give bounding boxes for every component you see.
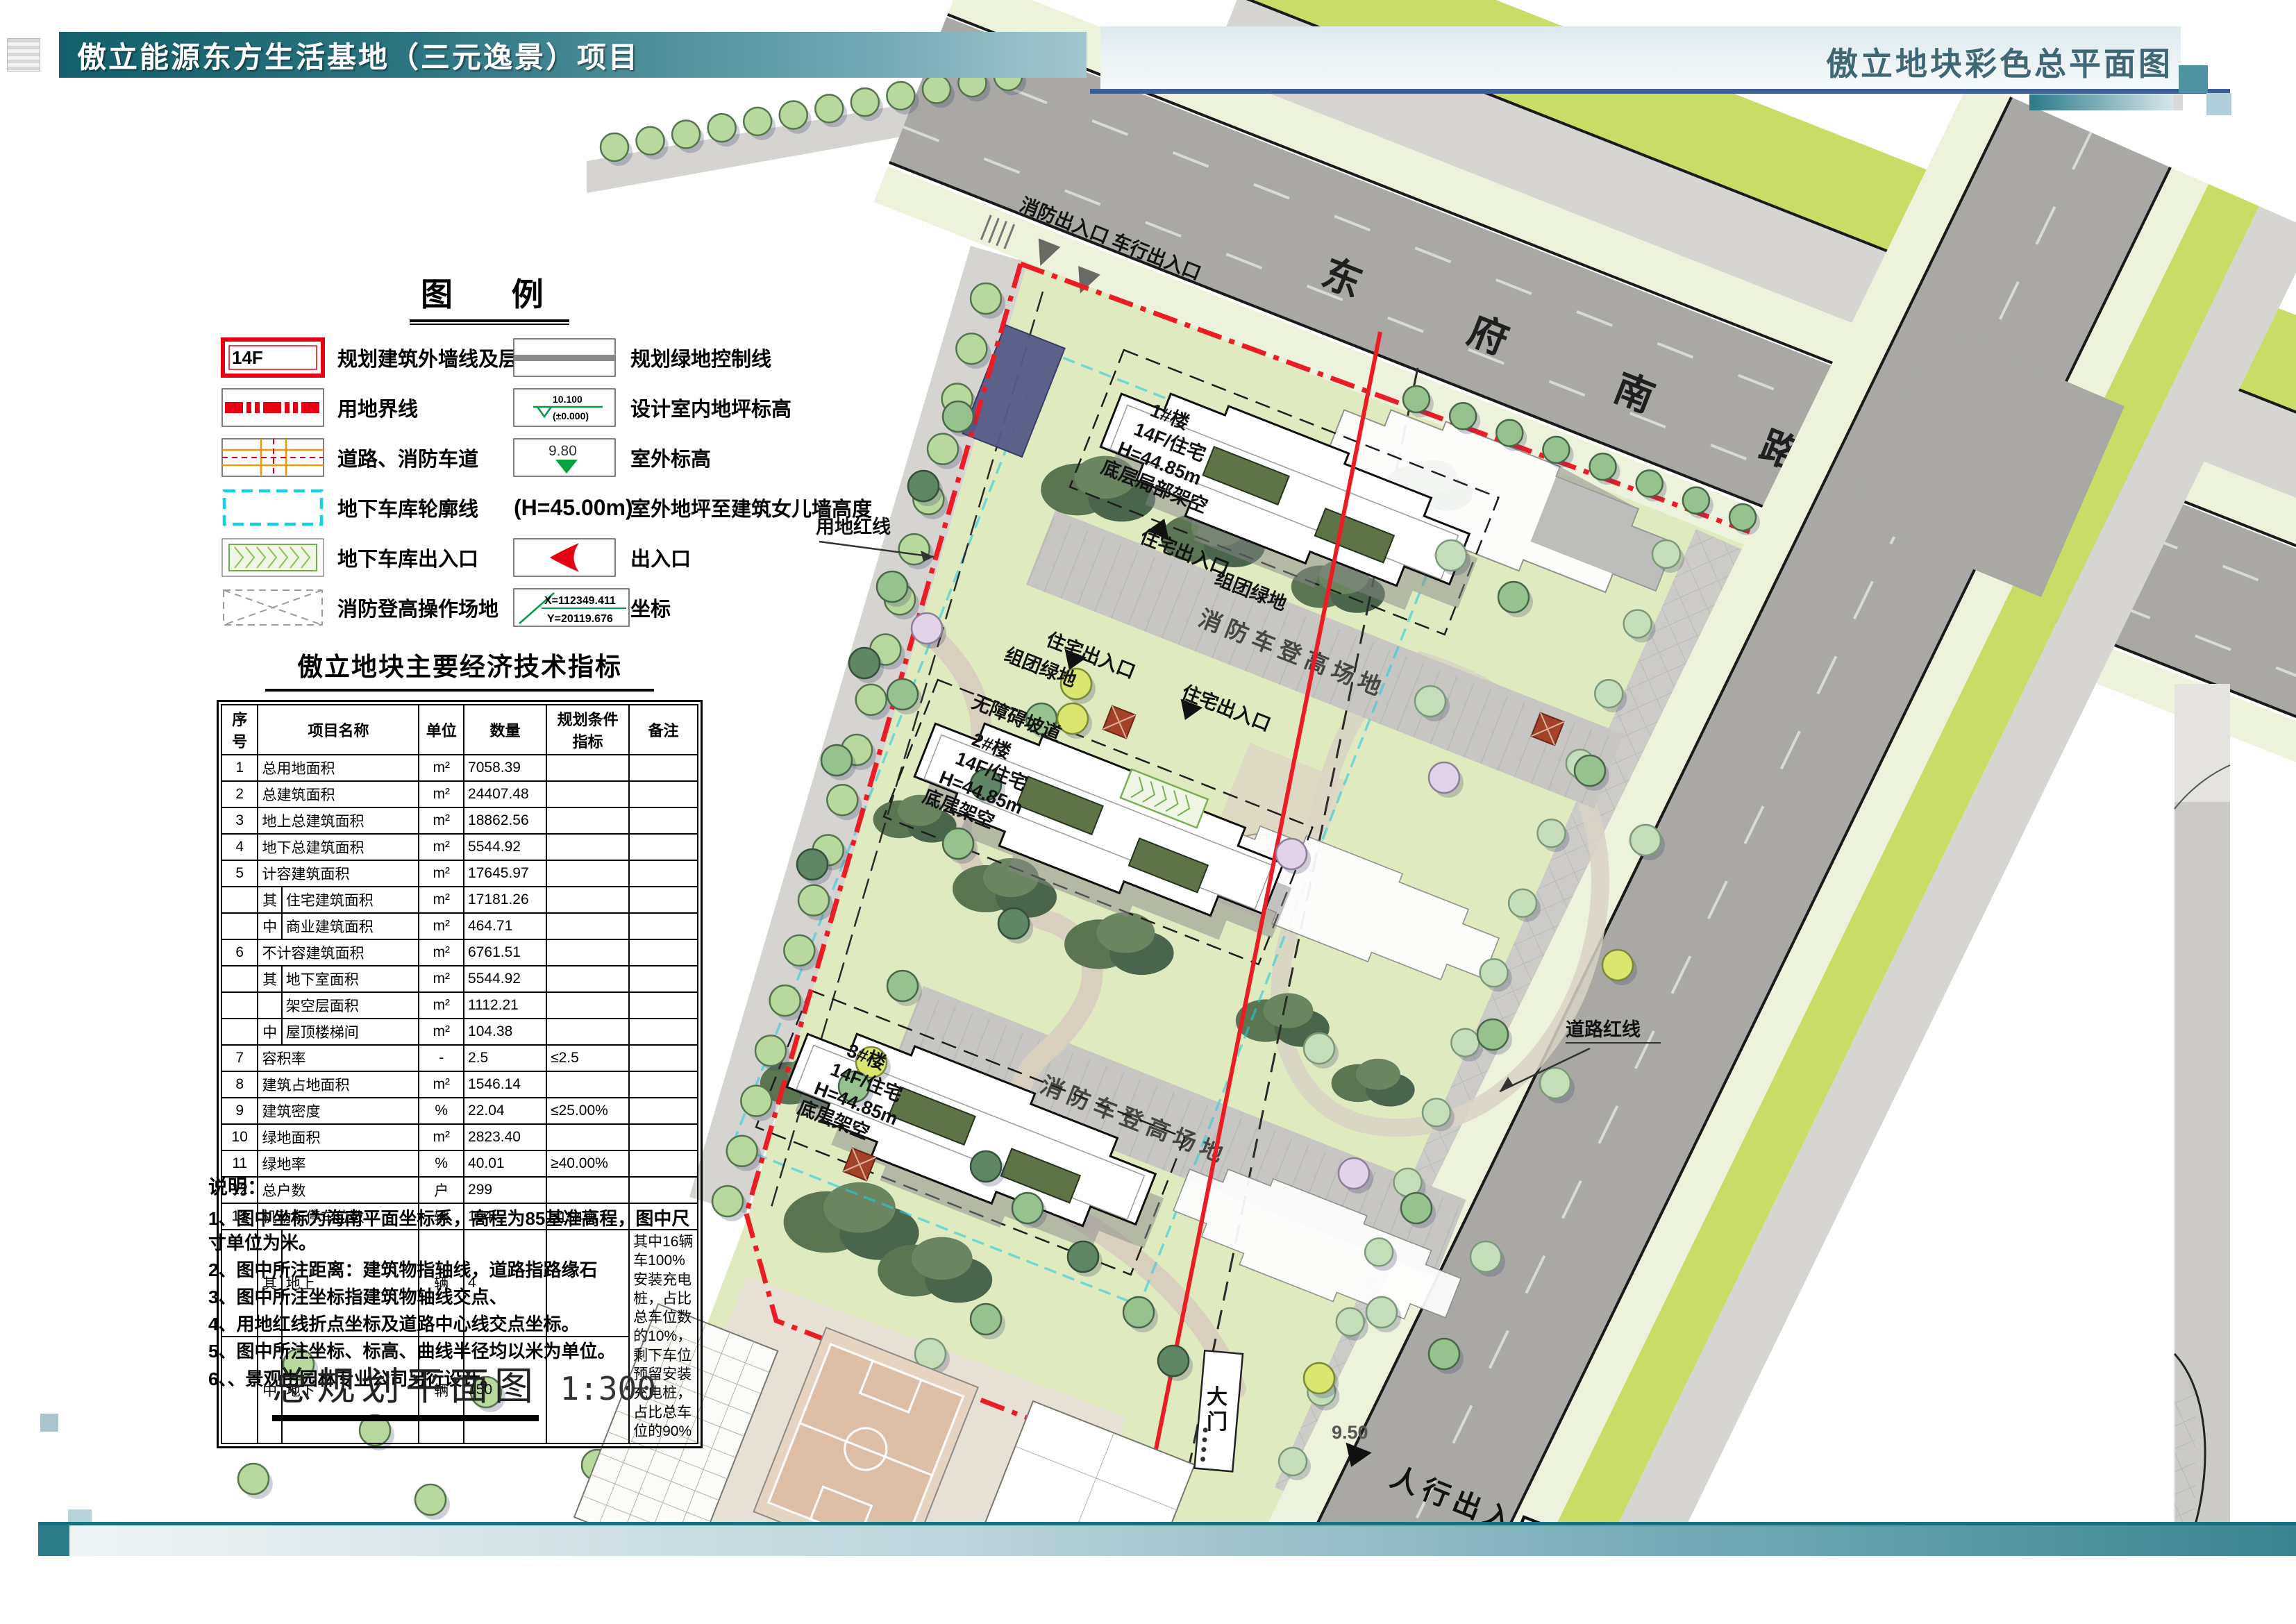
header-deco-square-icon bbox=[2179, 65, 2208, 93]
table-cell: m² bbox=[419, 887, 464, 913]
legend-site-boundary-icon bbox=[221, 387, 337, 428]
note-item: 4、用地红线折点坐标及道路中心线交点坐标。 bbox=[208, 1312, 694, 1337]
header-bar: 傲立能源东方生活基地（三元逸景）项目 bbox=[59, 32, 1087, 78]
table-cell: 5544.92 bbox=[464, 966, 546, 992]
plan-title: 总规划平面图 1:300 bbox=[272, 1355, 656, 1412]
table-cell: 住宅建筑面积 bbox=[282, 887, 419, 913]
table-title: 傲立地块主要经济技术指标 bbox=[217, 646, 703, 683]
legend-level-top: 10.100 bbox=[553, 394, 583, 405]
table-cell: 1 bbox=[221, 755, 258, 781]
table-cell: 7058.39 bbox=[464, 755, 546, 781]
project-title: 傲立能源东方生活基地（三元逸景）项目 bbox=[59, 34, 639, 76]
table-cell: 商业建筑面积 bbox=[282, 913, 419, 939]
table-cell bbox=[629, 939, 698, 966]
table-row: 10绿地面积m²2823.40 bbox=[221, 1124, 698, 1150]
legend-h45-text: (H=45.00m) bbox=[514, 495, 633, 520]
legend-label: 出入口 bbox=[630, 543, 832, 572]
header-deco-blue-icon bbox=[2206, 93, 2231, 115]
table-cell bbox=[258, 992, 281, 1019]
table-cell: 6 bbox=[221, 939, 258, 966]
col-header: 序号 bbox=[221, 705, 258, 755]
table-cell bbox=[546, 807, 629, 834]
table-cell: 5 bbox=[221, 860, 258, 887]
table-cell: 5544.92 bbox=[464, 834, 546, 860]
table-cell bbox=[629, 860, 698, 887]
table-cell: 17645.97 bbox=[464, 860, 546, 887]
header-deco-bar bbox=[2029, 94, 2173, 110]
tree-icon bbox=[238, 1464, 273, 1499]
footer-deco-icon bbox=[38, 1525, 69, 1556]
table-cell bbox=[546, 992, 629, 1019]
note-item: 2、图中所注距离：建筑物指轴线，道路指路缘石 bbox=[208, 1258, 694, 1282]
legend-label: 规划绿地控制线 bbox=[630, 343, 832, 372]
legend: 图 例 14F 规划建筑外墙线及层数 规划绿地控制线 用地界线 10.100 bbox=[221, 269, 832, 628]
legend-level-bottom: (±0.000) bbox=[553, 410, 589, 421]
table-cell: m² bbox=[419, 834, 464, 860]
col-header: 数量 bbox=[464, 705, 546, 755]
table-row: 中屋顶楼梯间m²104.38 bbox=[221, 1019, 698, 1045]
table-cell bbox=[629, 1019, 698, 1045]
table-cell: m² bbox=[419, 1019, 464, 1045]
legend-label: 地下车库出入口 bbox=[337, 543, 512, 572]
legend-garage-outline-icon bbox=[221, 487, 337, 528]
col-header: 备注 bbox=[629, 705, 698, 755]
table-cell: 总建筑面积 bbox=[258, 781, 419, 807]
table-cell: - bbox=[419, 1045, 464, 1071]
road-redline-label: 道路红线 bbox=[1566, 1019, 1641, 1040]
legend-label: 消防登高操作场地 bbox=[337, 593, 512, 622]
legend-label: 用地界线 bbox=[337, 393, 512, 422]
table-cell bbox=[629, 1071, 698, 1098]
table-cell bbox=[546, 913, 629, 939]
table-cell: m² bbox=[419, 992, 464, 1019]
table-row: 其地下室面积m²5544.92 bbox=[221, 966, 698, 992]
table-cell: 2823.40 bbox=[464, 1124, 546, 1150]
legend-height-note: (H=45.00m) bbox=[512, 487, 630, 528]
table-row: 6不计容建筑面积m²6761.51 bbox=[221, 939, 698, 966]
table-cell bbox=[629, 807, 698, 834]
table-row: 8建筑占地面积m²1546.14 bbox=[221, 1071, 698, 1098]
table-cell: 其 bbox=[258, 887, 281, 913]
legend-garage-entrance-icon bbox=[221, 537, 337, 578]
table-cell: m² bbox=[419, 1071, 464, 1098]
table-cell: 中 bbox=[258, 1019, 281, 1045]
col-header: 单位 bbox=[419, 705, 464, 755]
table-cell bbox=[629, 1098, 698, 1124]
footer-bar bbox=[69, 1525, 2296, 1556]
table-cell: 17181.26 bbox=[464, 887, 546, 913]
table-cell: 不计容建筑面积 bbox=[258, 939, 419, 966]
col-header: 规划条件指标 bbox=[546, 705, 629, 755]
table-cell: 104.38 bbox=[464, 1019, 546, 1045]
table-cell: 中 bbox=[258, 913, 281, 939]
table-cell: m² bbox=[419, 807, 464, 834]
header-rule bbox=[1090, 89, 2230, 94]
table-cell: m² bbox=[419, 913, 464, 939]
table-row: 9建筑密度%22.04≤25.00% bbox=[221, 1098, 698, 1124]
table-cell bbox=[629, 781, 698, 807]
table-cell: 1546.14 bbox=[464, 1071, 546, 1098]
table-cell bbox=[546, 939, 629, 966]
gate-label-char: 大 bbox=[1207, 1386, 1227, 1409]
table-cell: 绿地面积 bbox=[258, 1124, 419, 1150]
tree-icon bbox=[415, 1484, 450, 1520]
table-cell: 地上总建筑面积 bbox=[258, 807, 419, 834]
plan-title-text: 总规划平面图 bbox=[272, 1364, 539, 1421]
table-cell: 3 bbox=[221, 807, 258, 834]
legend-building-outline-icon: 14F bbox=[221, 337, 337, 378]
table-cell: 2.5 bbox=[464, 1045, 546, 1071]
table-cell bbox=[629, 992, 698, 1019]
legend-980-text: 9.80 bbox=[548, 443, 577, 459]
table-cell: 总用地面积 bbox=[258, 755, 419, 781]
table-row: 5计容建筑面积m²17645.97 bbox=[221, 860, 698, 887]
table-cell bbox=[546, 966, 629, 992]
table-cell: 计容建筑面积 bbox=[258, 860, 419, 887]
legend-label: 地下车库轮廓线 bbox=[337, 493, 512, 522]
table-cell: ≤25.00% bbox=[546, 1098, 629, 1124]
table-cell bbox=[546, 1124, 629, 1150]
legend-label: 设计室内地坪标高 bbox=[630, 393, 832, 422]
table-cell: 24407.48 bbox=[464, 781, 546, 807]
legend-label: 规划建筑外墙线及层数 bbox=[337, 343, 512, 372]
table-cell bbox=[221, 887, 258, 913]
table-row: 中商业建筑面积m²464.71 bbox=[221, 913, 698, 939]
table-cell: m² bbox=[419, 781, 464, 807]
gate-label-char: 门 bbox=[1207, 1411, 1227, 1434]
drawing-sheet: 消防出入口 车行出入口 东府南路 消防车登高场地 bbox=[0, 0, 2296, 1624]
notes-title: 说明： bbox=[208, 1172, 694, 1200]
table-row: 1总用地面积m²7058.39 bbox=[221, 755, 698, 781]
header-deco-gray-icon bbox=[2173, 94, 2183, 110]
table-row: 4地下总建筑面积m²5544.92 bbox=[221, 834, 698, 860]
corner-deco-icon bbox=[7, 38, 40, 72]
table-cell bbox=[221, 992, 258, 1019]
table-cell: ≤2.5 bbox=[546, 1045, 629, 1071]
table-cell: % bbox=[419, 1098, 464, 1124]
footer-deco-square-icon bbox=[68, 1509, 92, 1523]
table-cell: 1112.21 bbox=[464, 992, 546, 1019]
legend-entrance-arrow-icon bbox=[512, 537, 630, 578]
table-cell: 22.04 bbox=[464, 1098, 546, 1124]
table-cell bbox=[629, 755, 698, 781]
table-cell: 建筑占地面积 bbox=[258, 1071, 419, 1098]
table-cell bbox=[546, 1071, 629, 1098]
table-cell bbox=[546, 1019, 629, 1045]
sheet-title: 傲立地块彩色总平面图 bbox=[1180, 39, 2173, 85]
table-cell bbox=[546, 887, 629, 913]
note-item: 1、图中坐标为海南平面坐标系，高程为85基准高程，图中尺寸单位为米。 bbox=[208, 1207, 694, 1255]
table-cell bbox=[221, 966, 258, 992]
table-cell: 10 bbox=[221, 1124, 258, 1150]
table-cell: 容积率 bbox=[258, 1045, 419, 1071]
note-item: 3、图中所注坐标指建筑物轴线交点、 bbox=[208, 1285, 694, 1309]
legend-road-icon bbox=[221, 437, 337, 478]
table-cell: 4 bbox=[221, 834, 258, 860]
table-cell: 464.71 bbox=[464, 913, 546, 939]
table-row: 2总建筑面积m²24407.48 bbox=[221, 781, 698, 807]
table-cell: 屋顶楼梯间 bbox=[282, 1019, 419, 1045]
far-right-road-fragment bbox=[2175, 684, 2230, 1525]
legend-label: 室外标高 bbox=[630, 443, 832, 472]
legend-indoor-level-icon: 10.100 (±0.000) bbox=[512, 387, 630, 428]
legend-label: 室外地坪至建筑女儿墙高度 bbox=[630, 493, 832, 522]
table-cell: 6761.51 bbox=[464, 939, 546, 966]
legend-title: 图 例 bbox=[421, 269, 569, 315]
legend-label: 坐标 bbox=[630, 593, 832, 622]
col-header: 项目名称 bbox=[258, 705, 419, 755]
page-deco-square-icon bbox=[40, 1414, 58, 1432]
table-row: 架空层面积m²1112.21 bbox=[221, 992, 698, 1019]
table-cell: m² bbox=[419, 1124, 464, 1150]
table-row: 7容积率-2.5≤2.5 bbox=[221, 1045, 698, 1071]
table-cell: 8 bbox=[221, 1071, 258, 1098]
table-row: 其住宅建筑面积m²17181.26 bbox=[221, 887, 698, 913]
table-cell: 2 bbox=[221, 781, 258, 807]
table-cell: 架空层面积 bbox=[282, 992, 419, 1019]
legend-coord-y: Y=20119.676 bbox=[547, 613, 613, 625]
table-cell bbox=[629, 834, 698, 860]
table-cell: 建筑密度 bbox=[258, 1098, 419, 1124]
legend-green-control-icon bbox=[512, 337, 630, 378]
table-cell bbox=[546, 755, 629, 781]
table-cell bbox=[629, 1124, 698, 1150]
table-cell bbox=[629, 887, 698, 913]
table-cell: 9 bbox=[221, 1098, 258, 1124]
legend-outdoor-level-icon: 9.80 bbox=[512, 437, 630, 478]
legend-fire-field-icon bbox=[221, 587, 337, 628]
table-cell: m² bbox=[419, 939, 464, 966]
legend-label: 道路、消防车道 bbox=[337, 443, 512, 472]
legend-14f-text: 14F bbox=[232, 347, 263, 368]
table-cell: 7 bbox=[221, 1045, 258, 1071]
table-cell bbox=[546, 781, 629, 807]
table-cell bbox=[221, 913, 258, 939]
table-cell bbox=[629, 1045, 698, 1071]
legend-coord-x: X=112349.411 bbox=[544, 595, 616, 607]
table-cell bbox=[546, 860, 629, 887]
table-cell bbox=[629, 913, 698, 939]
table-cell: m² bbox=[419, 755, 464, 781]
plan-title-scale: 1:300 bbox=[560, 1370, 655, 1407]
table-cell: 其 bbox=[258, 966, 281, 992]
table-row: 3地上总建筑面积m²18862.56 bbox=[221, 807, 698, 834]
table-cell bbox=[221, 1019, 258, 1045]
table-cell: 18862.56 bbox=[464, 807, 546, 834]
table-cell bbox=[629, 966, 698, 992]
elevation-label: 9.50 bbox=[1332, 1422, 1368, 1443]
legend-coordinate-icon: X=112349.411 Y=20119.676 bbox=[512, 587, 630, 628]
table-cell: m² bbox=[419, 860, 464, 887]
table-cell bbox=[546, 834, 629, 860]
table-cell: m² bbox=[419, 966, 464, 992]
table-cell: 地下室面积 bbox=[282, 966, 419, 992]
table-cell: 地下总建筑面积 bbox=[258, 834, 419, 860]
